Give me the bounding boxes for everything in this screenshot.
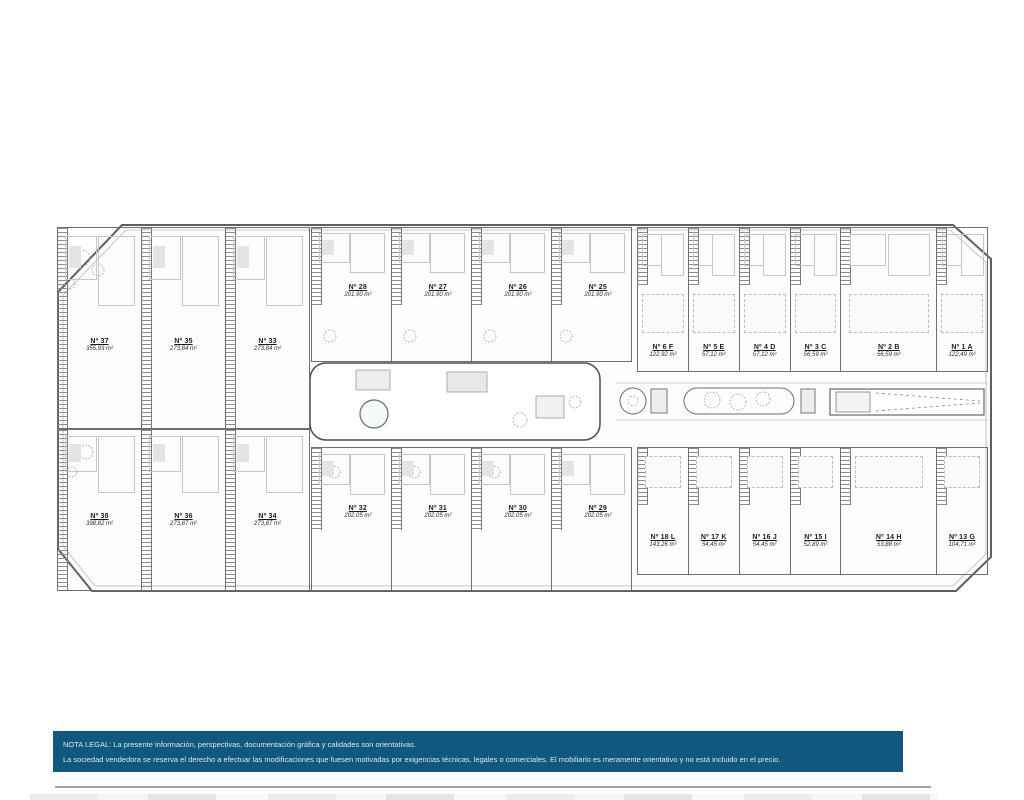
unit-area: 273,87 m² xyxy=(226,521,309,527)
unit-area: 56,59 m² xyxy=(841,352,936,358)
garden-patio xyxy=(642,294,684,333)
landscaped-island xyxy=(684,388,794,414)
garden-patio xyxy=(747,456,783,488)
roundabout xyxy=(620,388,646,414)
unit-label: Nº 29 202,05 m² xyxy=(566,505,629,519)
furniture-block xyxy=(153,246,165,268)
room-outline xyxy=(693,234,713,266)
villas-row-top-left: Nº 37 355,93 m² Nº 35 273,84 m² xyxy=(58,227,310,429)
furniture-block xyxy=(482,240,494,255)
room-outline xyxy=(961,234,984,276)
unit-label: Nº 25 201,90 m² xyxy=(566,284,629,298)
villas-row-bottom-left: Nº 38 398,82 m² Nº 36 273,87 m² xyxy=(58,429,310,591)
unit-cell: Nº 30 202,05 m² xyxy=(471,447,552,591)
unit-area: 201,90 m² xyxy=(566,292,629,298)
unit-number: Nº 18 L xyxy=(638,534,688,541)
unit-label: Nº 35 273,84 m² xyxy=(142,338,225,352)
unit-cell: Nº 36 273,87 m² xyxy=(141,429,226,591)
unit-area: 52,89 m² xyxy=(791,542,841,548)
unit-label: Nº 1 A 122,49 m² xyxy=(937,344,987,358)
unit-cell: Nº 37 355,93 m² xyxy=(57,227,142,429)
utility-box xyxy=(801,389,815,413)
unit-cell: Nº 15 I 52,89 m² xyxy=(790,447,842,575)
unit-number: Nº 31 xyxy=(406,505,469,512)
unit-number: Nº 16 J xyxy=(740,534,790,541)
unit-area: 201,90 m² xyxy=(486,292,549,298)
room-outline xyxy=(350,454,385,496)
garden-patio xyxy=(744,294,786,333)
unit-number: Nº 2 B xyxy=(841,344,936,351)
unit-label: Nº 18 L 143,26 m² xyxy=(638,534,688,548)
furniture-block xyxy=(69,444,81,462)
legal-note-line1: NOTA LEGAL: La presente información, per… xyxy=(63,737,893,752)
unit-label: Nº 6 F 122,92 m² xyxy=(638,344,688,358)
unit-cell: Nº 27 201,90 m² xyxy=(391,227,472,362)
unit-cell: Nº 3 C 56,59 m² xyxy=(790,227,842,372)
unit-number: Nº 26 xyxy=(486,284,549,291)
room-outline xyxy=(850,234,886,266)
unit-number: Nº 38 xyxy=(58,513,141,520)
room-outline xyxy=(182,236,219,306)
unit-area: 54,45 m² xyxy=(740,542,790,548)
unit-label: Nº 15 I 52,89 m² xyxy=(791,534,841,548)
bottom-cropped-strip xyxy=(30,794,938,800)
round-pool xyxy=(360,400,388,428)
unit-label: Nº 5 E 57,12 m² xyxy=(689,344,739,358)
furniture-block xyxy=(237,246,249,268)
unit-number: Nº 34 xyxy=(226,513,309,520)
unit-cell: Nº 1 A 122,49 m² xyxy=(936,227,988,372)
unit-cell: Nº 28 201,90 m² xyxy=(311,227,392,362)
unit-number: Nº 32 xyxy=(326,505,389,512)
unit-label: Nº 34 273,87 m² xyxy=(226,513,309,527)
unit-area: 273,84 m² xyxy=(226,346,309,352)
planter-box xyxy=(536,396,564,418)
townhouses-row-top-right: Nº 6 F 122,92 m² Nº 5 E 57,12 m² xyxy=(638,227,988,372)
unit-area: 202,05 m² xyxy=(326,513,389,519)
unit-cell: Nº 4 D 57,12 m² xyxy=(739,227,791,372)
legal-note-bar: NOTA LEGAL: La presente información, per… xyxy=(53,731,903,772)
room-outline xyxy=(98,236,135,306)
unit-cell: Nº 38 398,82 m² xyxy=(57,429,142,591)
unit-area: 201,90 m² xyxy=(406,292,469,298)
furniture-block xyxy=(562,461,574,477)
garden-patio xyxy=(693,294,735,333)
room-outline xyxy=(510,454,545,496)
garden-patio xyxy=(944,456,980,488)
footer-divider-line xyxy=(55,786,931,788)
room-outline xyxy=(266,236,303,306)
room-outline xyxy=(350,233,385,272)
unit-number: Nº 29 xyxy=(566,505,629,512)
unit-area: 56,59 m² xyxy=(791,352,841,358)
unit-cell: Nº 2 B 56,59 m² xyxy=(840,227,937,372)
unit-number: Nº 6 F xyxy=(638,344,688,351)
unit-label: Nº 2 B 56,59 m² xyxy=(841,344,936,358)
unit-cell: Nº 31 202,05 m² xyxy=(391,447,472,591)
utility-box xyxy=(651,389,667,413)
unit-label: Nº 32 202,05 m² xyxy=(326,505,389,519)
unit-label: Nº 14 H 53,88 m² xyxy=(841,534,936,548)
garden-patio xyxy=(798,456,834,488)
unit-area: 122,92 m² xyxy=(638,352,688,358)
garden-patio xyxy=(849,294,929,333)
unit-area: 273,87 m² xyxy=(142,521,225,527)
unit-number: Nº 37 xyxy=(58,338,141,345)
unit-area: 122,49 m² xyxy=(937,352,987,358)
unit-label: Nº 36 273,87 m² xyxy=(142,513,225,527)
unit-area: 54,45 m² xyxy=(689,542,739,548)
room-outline xyxy=(642,234,662,266)
room-outline xyxy=(430,454,465,496)
unit-label: Nº 38 398,82 m² xyxy=(58,513,141,527)
unit-cell: Nº 34 273,87 m² xyxy=(225,429,310,591)
unit-label: Nº 30 202,05 m² xyxy=(486,505,549,519)
unit-area: 104,71 m² xyxy=(937,542,987,548)
unit-number: Nº 4 D xyxy=(740,344,790,351)
unit-label: Nº 16 J 54,45 m² xyxy=(740,534,790,548)
unit-area: 398,82 m² xyxy=(58,521,141,527)
room-outline xyxy=(590,454,625,496)
townhouses-row-bottom-right: Nº 18 L 143,26 m² Nº 17 K 54,45 m² Nº 16… xyxy=(638,447,988,575)
unit-number: Nº 14 H xyxy=(841,534,936,541)
unit-number: Nº 5 E xyxy=(689,344,739,351)
unit-area: 202,05 m² xyxy=(566,513,629,519)
room-outline xyxy=(712,234,735,276)
room-outline xyxy=(942,234,962,266)
unit-cell: Nº 17 K 54,45 m² xyxy=(688,447,740,575)
room-outline xyxy=(888,234,930,276)
garden-patio xyxy=(855,456,923,488)
furniture-block xyxy=(322,461,334,477)
unit-label: Nº 27 201,90 m² xyxy=(406,284,469,298)
units-row-bottom-middle: Nº 32 202,05 m² Nº 31 202,05 m² xyxy=(312,447,632,591)
unit-cell: Nº 16 J 54,45 m² xyxy=(739,447,791,575)
legal-note-line2: La sociedad vendedora se reserva el dere… xyxy=(63,752,893,767)
ramp-cabin xyxy=(836,392,870,412)
unit-cell: Nº 6 F 122,92 m² xyxy=(637,227,689,372)
page: Nº 37 355,93 m² Nº 35 273,84 m² xyxy=(0,0,1024,800)
unit-number: Nº 28 xyxy=(326,284,389,291)
unit-cell: Nº 14 H 53,88 m² xyxy=(840,447,937,575)
unit-number: Nº 27 xyxy=(406,284,469,291)
room-outline xyxy=(266,436,303,492)
furniture-block xyxy=(482,461,494,477)
furniture-block xyxy=(322,240,334,255)
furniture-block xyxy=(237,444,249,462)
furniture-block xyxy=(153,444,165,462)
unit-area: 57,12 m² xyxy=(740,352,790,358)
garden-patio xyxy=(696,456,732,488)
room-outline xyxy=(661,234,684,276)
garden-patio xyxy=(645,456,681,488)
room-outline xyxy=(430,233,465,272)
room-outline xyxy=(744,234,764,266)
room-outline xyxy=(510,233,545,272)
unit-area: 143,26 m² xyxy=(638,542,688,548)
unit-number: Nº 30 xyxy=(486,505,549,512)
unit-label: Nº 37 355,93 m² xyxy=(58,338,141,352)
furniture-block xyxy=(69,246,81,268)
unit-cell: Nº 35 273,84 m² xyxy=(141,227,226,429)
unit-area: 273,84 m² xyxy=(142,346,225,352)
units-row-top-middle: Nº 28 201,90 m² Nº 27 201,90 m² xyxy=(312,227,632,362)
room-outline xyxy=(98,436,135,492)
garden-patio xyxy=(795,294,837,333)
unit-number: Nº 15 I xyxy=(791,534,841,541)
unit-label: Nº 31 202,05 m² xyxy=(406,505,469,519)
unit-area: 202,05 m² xyxy=(486,513,549,519)
unit-label: Nº 26 201,90 m² xyxy=(486,284,549,298)
unit-cell: Nº 32 202,05 m² xyxy=(311,447,392,591)
room-outline xyxy=(795,234,815,266)
unit-label: Nº 4 D 57,12 m² xyxy=(740,344,790,358)
unit-area: 57,12 m² xyxy=(689,352,739,358)
unit-label: Nº 17 K 54,45 m² xyxy=(689,534,739,548)
unit-cell: Nº 5 E 57,12 m² xyxy=(688,227,740,372)
unit-number: Nº 35 xyxy=(142,338,225,345)
unit-area: 355,93 m² xyxy=(58,346,141,352)
unit-cell: Nº 25 201,90 m² xyxy=(551,227,632,362)
unit-label: Nº 28 201,90 m² xyxy=(326,284,389,298)
unit-cell: Nº 29 202,05 m² xyxy=(551,447,632,591)
unit-cell: Nº 33 273,84 m² xyxy=(225,227,310,429)
room-outline xyxy=(182,436,219,492)
unit-label: Nº 3 C 56,59 m² xyxy=(791,344,841,358)
room-outline xyxy=(590,233,625,272)
furniture-block xyxy=(402,461,414,477)
unit-cell: Nº 26 201,90 m² xyxy=(471,227,552,362)
room-outline xyxy=(763,234,786,276)
furniture-block xyxy=(402,240,414,255)
furniture-block xyxy=(562,240,574,255)
unit-cell: Nº 18 L 143,26 m² xyxy=(637,447,689,575)
room-outline xyxy=(814,234,837,276)
garden-patio xyxy=(941,294,983,333)
unit-label: Nº 33 273,84 m² xyxy=(226,338,309,352)
party-wall-hatch xyxy=(841,448,851,505)
unit-number: Nº 3 C xyxy=(791,344,841,351)
unit-number: Nº 36 xyxy=(142,513,225,520)
unit-area: 201,90 m² xyxy=(326,292,389,298)
pergola-deck xyxy=(356,370,390,390)
unit-area: 202,05 m² xyxy=(406,513,469,519)
unit-cell: Nº 13 G 104,71 m² xyxy=(936,447,988,575)
unit-number: Nº 25 xyxy=(566,284,629,291)
unit-label: Nº 13 G 104,71 m² xyxy=(937,534,987,548)
unit-area: 53,88 m² xyxy=(841,542,936,548)
unit-number: Nº 17 K xyxy=(689,534,739,541)
unit-number: Nº 13 G xyxy=(937,534,987,541)
shade-deck xyxy=(447,372,487,392)
unit-number: Nº 1 A xyxy=(937,344,987,351)
unit-number: Nº 33 xyxy=(226,338,309,345)
